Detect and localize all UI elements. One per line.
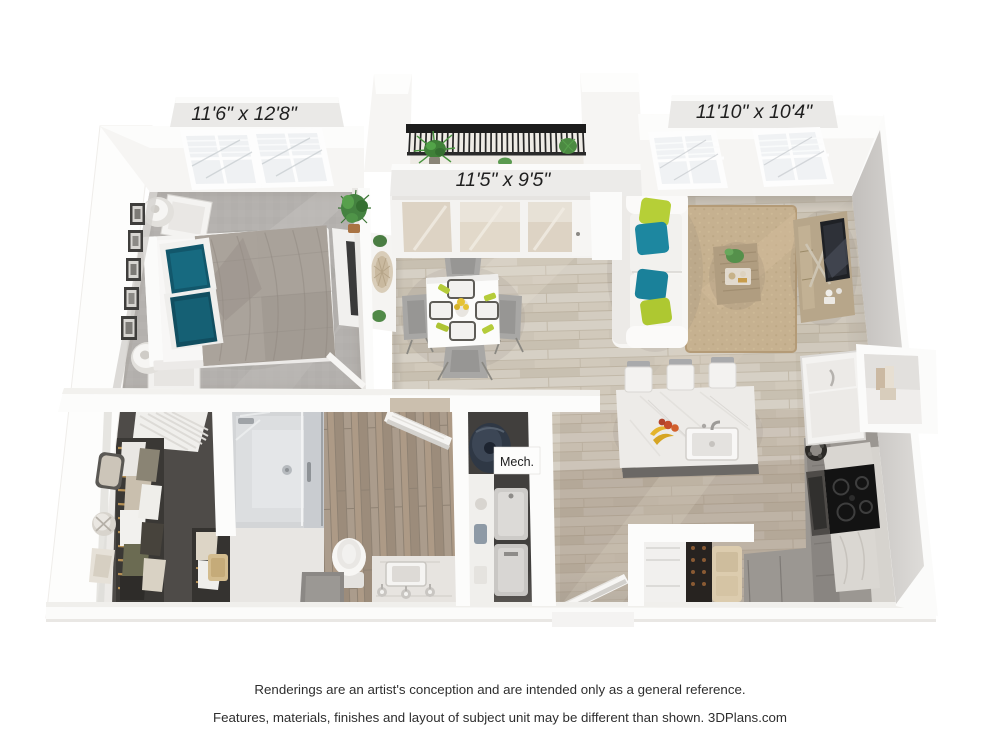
svg-text:11'6" x 12'8": 11'6" x 12'8": [191, 103, 298, 125]
svg-text:Mech.: Mech.: [500, 455, 534, 469]
svg-text:11'10" x 10'4": 11'10" x 10'4": [696, 101, 813, 123]
svg-text:11'5" x 9'5": 11'5" x 9'5": [456, 169, 552, 191]
